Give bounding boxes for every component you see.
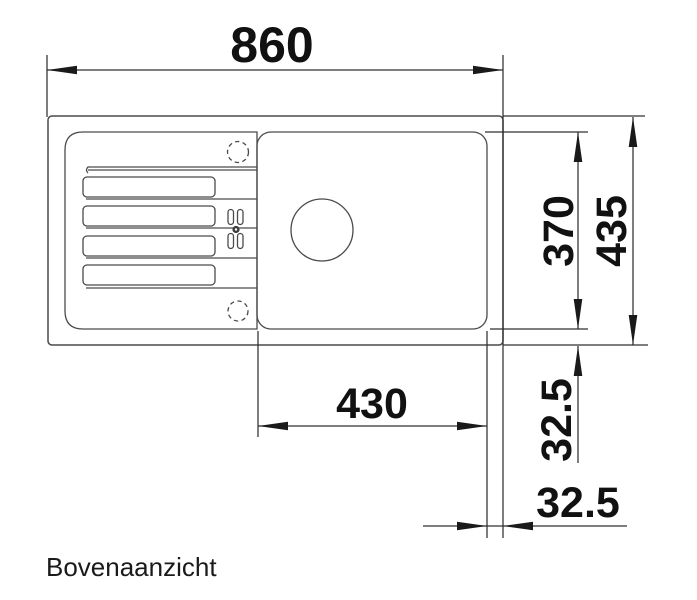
arrow-left-icon: [503, 522, 533, 531]
arrow-down-icon: [574, 299, 583, 329]
arrow-up-icon: [629, 117, 638, 147]
drain-slot: [238, 210, 244, 225]
drainboard-ridges: [83, 177, 215, 285]
dim-total-width: 860: [47, 17, 503, 538]
drain-slot: [238, 234, 244, 249]
drainboard-ridge: [83, 177, 215, 197]
arrow-right-icon: [457, 422, 487, 431]
screw-hole-icon: [235, 228, 237, 230]
view-caption: Bovenaanzicht: [46, 552, 217, 582]
tap-hole-bottom: [228, 301, 248, 321]
drainboard-groove: [87, 167, 258, 173]
sink-top-view-drawing: 860 430 370 435 32.5 32.5: [0, 0, 697, 600]
dim-basin-depth: 370: [485, 132, 588, 329]
dim-rim-offset-vertical: 32.5: [533, 346, 582, 463]
arrow-up-icon: [574, 132, 583, 162]
drain-slots: [228, 210, 243, 249]
arrow-left-icon: [47, 66, 77, 75]
tap-hole-top: [228, 142, 249, 163]
dim-total-width-label: 860: [230, 17, 313, 73]
arrow-right-icon: [457, 522, 487, 531]
drainboard-panel: [65, 132, 257, 329]
drain-slot: [228, 210, 234, 225]
dim-total-depth-label: 435: [588, 195, 636, 267]
drain-hole: [291, 199, 353, 261]
arrow-right-icon: [473, 66, 503, 75]
drainboard-grooves: [86, 167, 257, 288]
dim-rim-offset-horizontal-label: 32.5: [536, 479, 620, 527]
dim-rim-offset-horizontal: 32.5: [423, 479, 627, 530]
arrow-left-icon: [258, 422, 288, 431]
sink-body: [48, 116, 503, 345]
dim-bowl-width: 430: [258, 331, 487, 538]
dim-rim-offset-vertical-label: 32.5: [533, 378, 581, 462]
drain-slot: [228, 234, 234, 249]
drainboard-ridge: [83, 236, 215, 256]
drainboard-ridge: [83, 206, 215, 226]
sink-outer-edge: [48, 116, 503, 345]
arrow-down-icon: [629, 315, 638, 345]
dim-basin-depth-label: 370: [535, 195, 583, 267]
drainboard-ridge: [83, 265, 215, 285]
arrow-up-icon: [574, 346, 583, 376]
dim-bowl-width-label: 430: [336, 380, 408, 428]
